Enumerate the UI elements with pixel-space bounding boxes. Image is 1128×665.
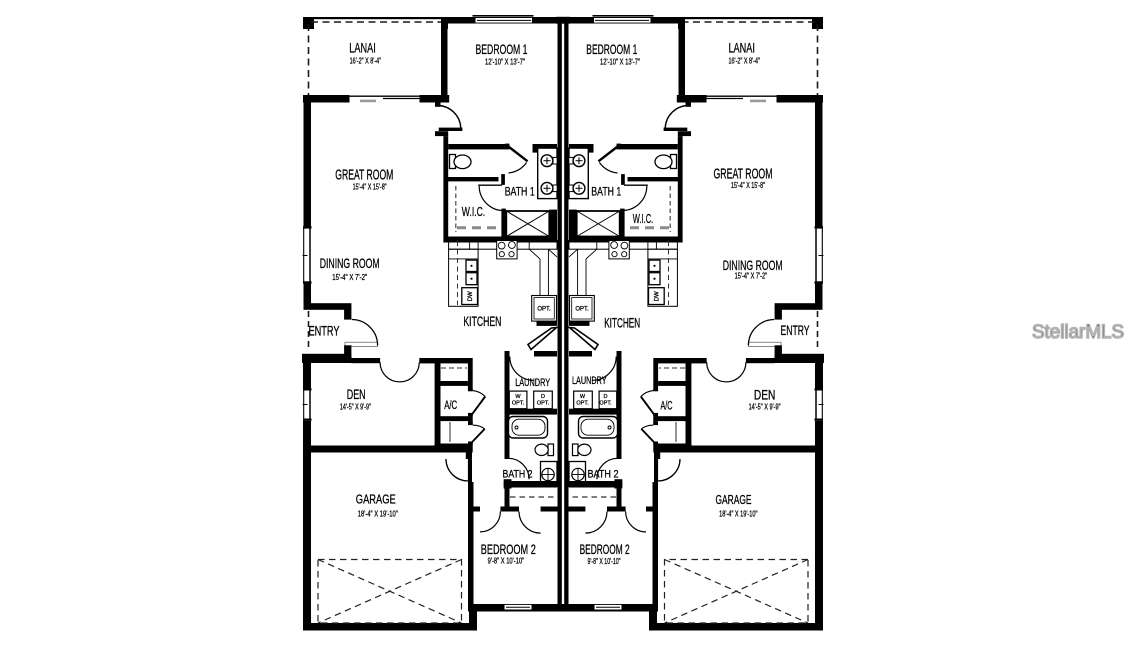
svg-text:LAUNDRY: LAUNDRY xyxy=(515,377,550,389)
svg-text:18'-4" X 19'-10": 18'-4" X 19'-10" xyxy=(719,508,757,518)
svg-text:16'-2" X 8'-4": 16'-2" X 8'-4" xyxy=(350,56,382,66)
svg-text:W: W xyxy=(515,394,521,400)
svg-text:12'-10" X 13'-7": 12'-10" X 13'-7" xyxy=(485,56,525,66)
svg-text:BEDROOM 2: BEDROOM 2 xyxy=(481,541,536,557)
svg-text:BATH 1: BATH 1 xyxy=(591,186,621,198)
svg-text:OPT.: OPT. xyxy=(576,401,589,407)
svg-text:14'-5" X 9'-9": 14'-5" X 9'-9" xyxy=(340,402,371,411)
svg-text:9'-8" X 10'-10": 9'-8" X 10'-10" xyxy=(488,556,525,566)
svg-text:15'-4" X 15'-8": 15'-4" X 15'-8" xyxy=(353,182,387,192)
svg-text:LANAI: LANAI xyxy=(349,40,376,55)
svg-text:15'-4" X 7'-2": 15'-4" X 7'-2" xyxy=(332,272,367,282)
svg-text:GARAGE: GARAGE xyxy=(716,492,752,507)
svg-text:14'-5" X 9'-9": 14'-5" X 9'-9" xyxy=(749,403,781,412)
svg-text:OPT.: OPT. xyxy=(599,401,612,407)
svg-text:KITCHEN: KITCHEN xyxy=(463,314,501,329)
svg-text:OPT.: OPT. xyxy=(575,307,589,313)
svg-text:D: D xyxy=(541,394,545,400)
svg-text:StellarMLS: StellarMLS xyxy=(1032,321,1124,343)
svg-text:GARAGE: GARAGE xyxy=(356,492,396,507)
svg-text:W: W xyxy=(580,394,586,400)
svg-text:12'-10" X 13'-7": 12'-10" X 13'-7" xyxy=(600,56,640,66)
svg-text:BEDROOM 1: BEDROOM 1 xyxy=(476,41,528,57)
svg-text:DW: DW xyxy=(468,291,474,301)
svg-text:15'-4" X 15'-8": 15'-4" X 15'-8" xyxy=(731,180,765,190)
svg-text:18'-4" X 19'-10": 18'-4" X 19'-10" xyxy=(358,508,398,518)
svg-text:ENTRY: ENTRY xyxy=(309,324,340,339)
svg-text:DEN: DEN xyxy=(754,388,776,403)
svg-text:BATH 1: BATH 1 xyxy=(505,186,535,198)
svg-text:9'-8" X 10'-10": 9'-8" X 10'-10" xyxy=(588,556,621,566)
svg-text:A/C: A/C xyxy=(444,400,457,412)
svg-text:OPT.: OPT. xyxy=(537,307,551,313)
svg-text:KITCHEN: KITCHEN xyxy=(604,316,640,331)
svg-text:BEDROOM 1: BEDROOM 1 xyxy=(586,41,637,57)
svg-text:LAUNDRY: LAUNDRY xyxy=(572,375,607,387)
svg-text:LANAI: LANAI xyxy=(728,40,755,55)
svg-text:OPT.: OPT. xyxy=(537,401,550,407)
svg-text:BEDROOM 2: BEDROOM 2 xyxy=(580,541,630,557)
svg-text:BATH 2: BATH 2 xyxy=(588,469,619,481)
svg-text:OPT.: OPT. xyxy=(512,401,525,407)
svg-text:15'-4" X 7'-2": 15'-4" X 7'-2" xyxy=(735,271,768,281)
svg-text:DW: DW xyxy=(654,291,660,301)
svg-text:DINING ROOM: DINING ROOM xyxy=(320,255,380,271)
svg-text:D: D xyxy=(604,394,608,400)
svg-text:W.I.C.: W.I.C. xyxy=(462,204,485,219)
svg-text:W.I.C.: W.I.C. xyxy=(633,211,654,226)
svg-text:DEN: DEN xyxy=(347,387,366,402)
svg-text:16'-2" X 8'-4": 16'-2" X 8'-4" xyxy=(728,56,760,66)
svg-text:BATH 2: BATH 2 xyxy=(503,469,533,481)
svg-text:ENTRY: ENTRY xyxy=(781,323,810,338)
svg-text:A/C: A/C xyxy=(661,401,673,413)
